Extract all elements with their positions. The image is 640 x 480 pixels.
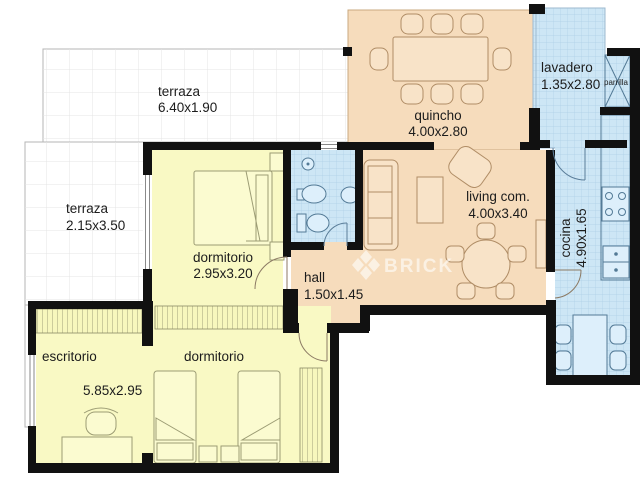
label-dormitorio-secundario: dormitorio bbox=[184, 349, 244, 364]
shower-drain bbox=[307, 163, 310, 166]
chair-symbol bbox=[431, 84, 453, 104]
room-passage bbox=[142, 346, 153, 453]
closet-dormitorio-principal bbox=[155, 306, 290, 329]
kitchen-table-symbol bbox=[573, 315, 607, 377]
label-terraza-left-dims: 2.15x3.50 bbox=[66, 218, 125, 233]
chair-symbol bbox=[401, 84, 423, 104]
label-cocina-dims: 4.90x1.65 bbox=[574, 208, 589, 267]
label-terraza-left: terraza bbox=[66, 201, 109, 216]
label-lavadero-dims: 1.35x2.80 bbox=[541, 77, 600, 92]
label-escritorio-dims: 5.85x2.95 bbox=[83, 383, 142, 398]
sofa-cushion bbox=[368, 192, 392, 218]
floor-plan: terraza 6.40x1.90 terraza 2.15x3.50 quin… bbox=[0, 0, 640, 480]
bidet-symbol bbox=[302, 185, 326, 203]
dining-table-symbol bbox=[393, 37, 488, 81]
label-hall-dims: 1.50x1.45 bbox=[304, 287, 363, 302]
chair-symbol bbox=[461, 14, 483, 34]
desk-symbol bbox=[62, 437, 132, 464]
watermark-brand: BRICK bbox=[384, 256, 454, 277]
nightstand-symbol bbox=[270, 153, 284, 171]
chair-symbol bbox=[401, 14, 423, 34]
stove-symbol bbox=[602, 187, 629, 221]
stove-burner bbox=[606, 193, 613, 200]
coffee-table-symbol bbox=[417, 177, 443, 223]
toilet-tank bbox=[297, 214, 306, 232]
nightstand-symbol bbox=[199, 446, 217, 462]
chair-symbol bbox=[457, 283, 475, 299]
chair-symbol bbox=[496, 283, 514, 299]
closet-escritorio bbox=[36, 309, 142, 333]
sofa-cushion bbox=[368, 166, 392, 192]
side-table-symbol bbox=[536, 220, 546, 268]
chair-symbol bbox=[461, 84, 483, 104]
sink-drain bbox=[614, 252, 618, 256]
stove-burner bbox=[619, 209, 626, 216]
chair-symbol bbox=[555, 325, 571, 344]
label-lavadero: lavadero bbox=[541, 60, 593, 75]
chair-symbol bbox=[610, 325, 626, 344]
stove-burner bbox=[606, 209, 613, 216]
nightstand-symbol bbox=[221, 446, 239, 462]
chair-symbol bbox=[555, 351, 571, 370]
desk-chair-symbol bbox=[86, 412, 116, 435]
round-table-symbol bbox=[462, 240, 510, 288]
label-living-dims: 4.00x3.40 bbox=[468, 206, 527, 221]
stove-burner bbox=[619, 193, 626, 200]
label-escritorio: escritorio bbox=[42, 349, 97, 364]
chair-symbol bbox=[370, 48, 388, 70]
closet-dormitorio-secundario bbox=[300, 368, 322, 462]
label-hall: hall bbox=[304, 270, 325, 285]
sink-drain bbox=[614, 268, 618, 272]
label-terraza-top-dims: 6.40x1.90 bbox=[158, 100, 217, 115]
floor-plan-canvas: terraza 6.40x1.90 terraza 2.15x3.50 quin… bbox=[0, 0, 640, 480]
chair-symbol bbox=[508, 246, 526, 262]
window-dormitorio-west bbox=[143, 175, 152, 269]
chair-symbol bbox=[431, 14, 453, 34]
terrace-edge-line bbox=[25, 305, 28, 427]
label-quincho: quincho bbox=[414, 108, 461, 123]
toilet-symbol bbox=[307, 214, 329, 232]
sofa-cushion bbox=[368, 218, 392, 244]
label-terraza-top: terraza bbox=[158, 84, 201, 99]
label-cocina: cocina bbox=[558, 218, 573, 258]
window-escritorio-west bbox=[28, 355, 36, 426]
pillow-symbol bbox=[157, 443, 193, 460]
pillow-symbol bbox=[241, 443, 277, 460]
label-living: living com. bbox=[466, 189, 530, 204]
label-dormitorio-principal-dims: 2.95x3.20 bbox=[193, 266, 252, 281]
chair-symbol bbox=[610, 351, 626, 370]
label-dormitorio-principal: dormitorio bbox=[193, 250, 253, 265]
label-parrilla: parrilla bbox=[604, 78, 629, 87]
label-quincho-dims: 4.00x2.80 bbox=[408, 124, 467, 139]
chair-symbol bbox=[493, 48, 511, 70]
window-bathroom-north bbox=[321, 142, 337, 150]
chair-symbol bbox=[477, 223, 495, 239]
